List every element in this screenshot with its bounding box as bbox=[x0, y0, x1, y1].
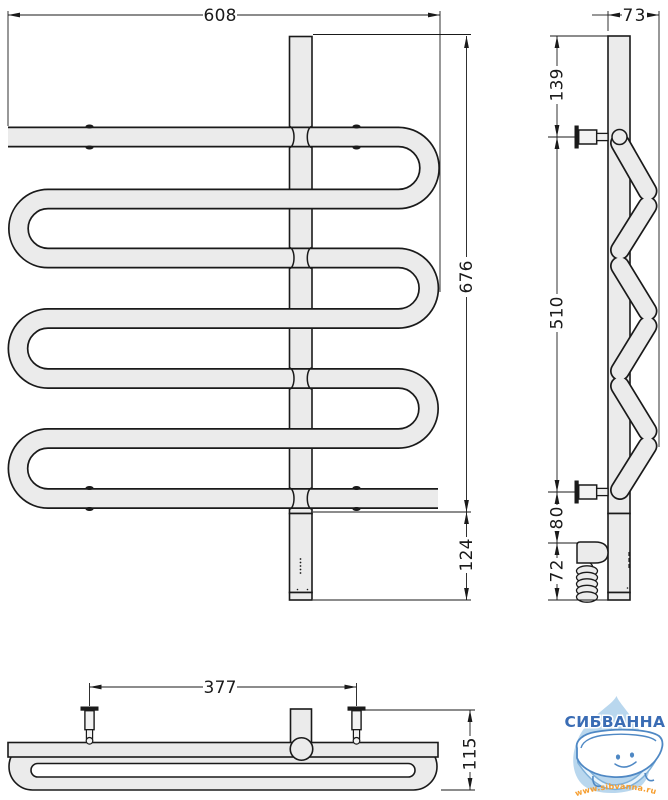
plan-loop-hole bbox=[31, 764, 415, 778]
plan-rail-tube bbox=[8, 743, 438, 758]
dim-side-lower: 80 bbox=[548, 507, 568, 530]
dim-side-span: 510 bbox=[548, 297, 568, 330]
wall-bracket-top bbox=[575, 126, 609, 149]
sibvanna-logo: СИБВАННА www.sibvanna.ru bbox=[565, 696, 666, 798]
front-heating-element bbox=[290, 514, 313, 593]
plan-bracket-left bbox=[81, 707, 99, 745]
dim-side-depth: 73 bbox=[623, 6, 646, 26]
dim-plan-span: 377 bbox=[204, 678, 237, 698]
dim-side-top: 139 bbox=[548, 69, 568, 102]
side-heating-element bbox=[608, 514, 630, 593]
side-heating-element-cap bbox=[608, 593, 630, 601]
technical-drawing-page: 608 73 676 124 139 510 80 72 377 115 СИБ… bbox=[0, 0, 668, 800]
dim-plan-depth: 115 bbox=[461, 738, 481, 771]
wall-bracket-bottom bbox=[575, 481, 609, 504]
dim-side-bottom: 72 bbox=[548, 560, 568, 583]
electric-connection-box bbox=[577, 542, 608, 563]
plan-bracket-right bbox=[348, 707, 366, 745]
power-cable-coil bbox=[577, 563, 598, 602]
dim-front-height: 676 bbox=[457, 261, 477, 294]
side-pivot-circle bbox=[612, 130, 627, 145]
front-view bbox=[8, 37, 438, 601]
dim-front-bottom: 124 bbox=[457, 539, 477, 572]
front-heating-element-cap bbox=[290, 593, 313, 601]
side-view bbox=[575, 36, 648, 602]
side-element-dot bbox=[627, 587, 629, 589]
brand-name: СИБВАННА bbox=[565, 713, 666, 731]
towel-rail-drawing: 608 73 676 124 139 510 80 72 377 115 СИБ… bbox=[0, 0, 668, 800]
dim-front-width: 608 bbox=[204, 6, 237, 26]
plan-riser-circle bbox=[290, 738, 313, 761]
serpentine-tube-fill bbox=[8, 137, 438, 499]
bottom-view bbox=[8, 707, 438, 791]
